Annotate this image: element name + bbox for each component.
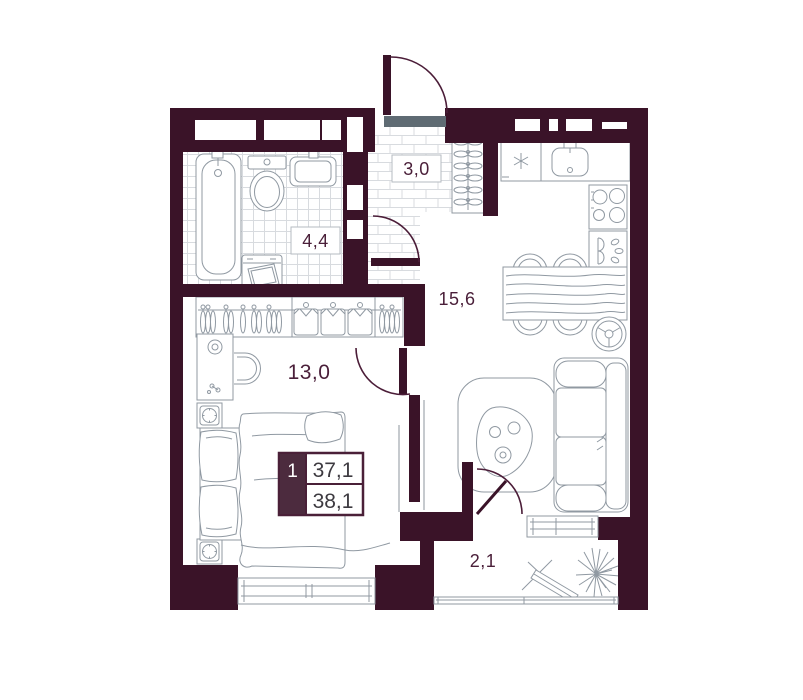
room-label-bathroom: 4,4 [302,231,329,251]
wall-niche [347,185,363,210]
bedroom-furniture [196,297,403,568]
wall-sliding-panel [409,395,420,502]
pillow [199,485,238,537]
desk [197,334,233,400]
wall-bedroom-corner [404,284,425,346]
bedroom-window [238,578,375,604]
vent-shaft [195,120,256,140]
vent-shaft [566,119,592,131]
legend-unit-number: 1 [287,461,298,482]
sofa [554,358,628,512]
plant [576,548,620,597]
entrance-threshold [384,116,446,127]
hallway-floor-bricks-lower [368,212,420,284]
vent-shaft [264,120,320,140]
wall-bottom-mid [375,565,434,610]
room-label-kitchen-living: 15,6 [438,289,475,309]
wall-hallway-kitchen [483,110,498,216]
washing-machine [242,255,282,289]
dining-table [503,267,627,320]
vent-shaft [322,120,341,140]
pillow [199,430,238,482]
wall-bedroom-balcony [400,512,473,541]
vent-shaft [515,119,540,131]
hanging-shirts [294,303,372,336]
bedroom-door [356,348,410,395]
desk-chair [234,353,260,384]
balcony-window [527,516,598,537]
wall-niche [347,220,363,239]
dish-rack [589,231,627,271]
wall-bottom-left [170,565,238,610]
vent-shaft [347,117,363,152]
fridge [501,141,541,181]
balcony-glazing [434,597,618,604]
nightstand-bottom [197,539,222,564]
room-label-hallway: 3,0 [403,159,430,179]
living-area [458,358,628,512]
wardrobe [196,297,403,337]
entrance-door [383,55,447,115]
throw-pillow [305,412,344,443]
stove [589,185,627,229]
legend-living-area: 37,1 [313,459,354,482]
room-label-balcony: 2,1 [470,551,497,571]
nightstand-top [197,403,222,428]
vent-shaft [549,119,558,131]
toilet [248,156,286,211]
wall-right [630,110,648,520]
vent-shaft [602,122,627,129]
legend: 1 37,1 38,1 [279,453,363,515]
legend-total-area: 38,1 [313,490,354,513]
wall-balcony-door-stub [462,462,473,516]
floor-plan: 3,0 4,4 15,6 13,0 2,1 1 37,1 38,1 [0,0,803,700]
wall-bedroom-top [170,284,425,297]
room-label-bedroom: 13,0 [288,361,331,384]
swivel-chair [592,317,626,351]
coffee-table [477,407,533,477]
kitchen [501,141,630,351]
wall-living-balcony [598,517,630,540]
balcony-items [522,548,620,603]
wall-left [170,108,183,610]
bathtub [196,150,241,280]
floor-plan-page: 3,0 4,4 15,6 13,0 2,1 1 37,1 38,1 [0,0,803,700]
